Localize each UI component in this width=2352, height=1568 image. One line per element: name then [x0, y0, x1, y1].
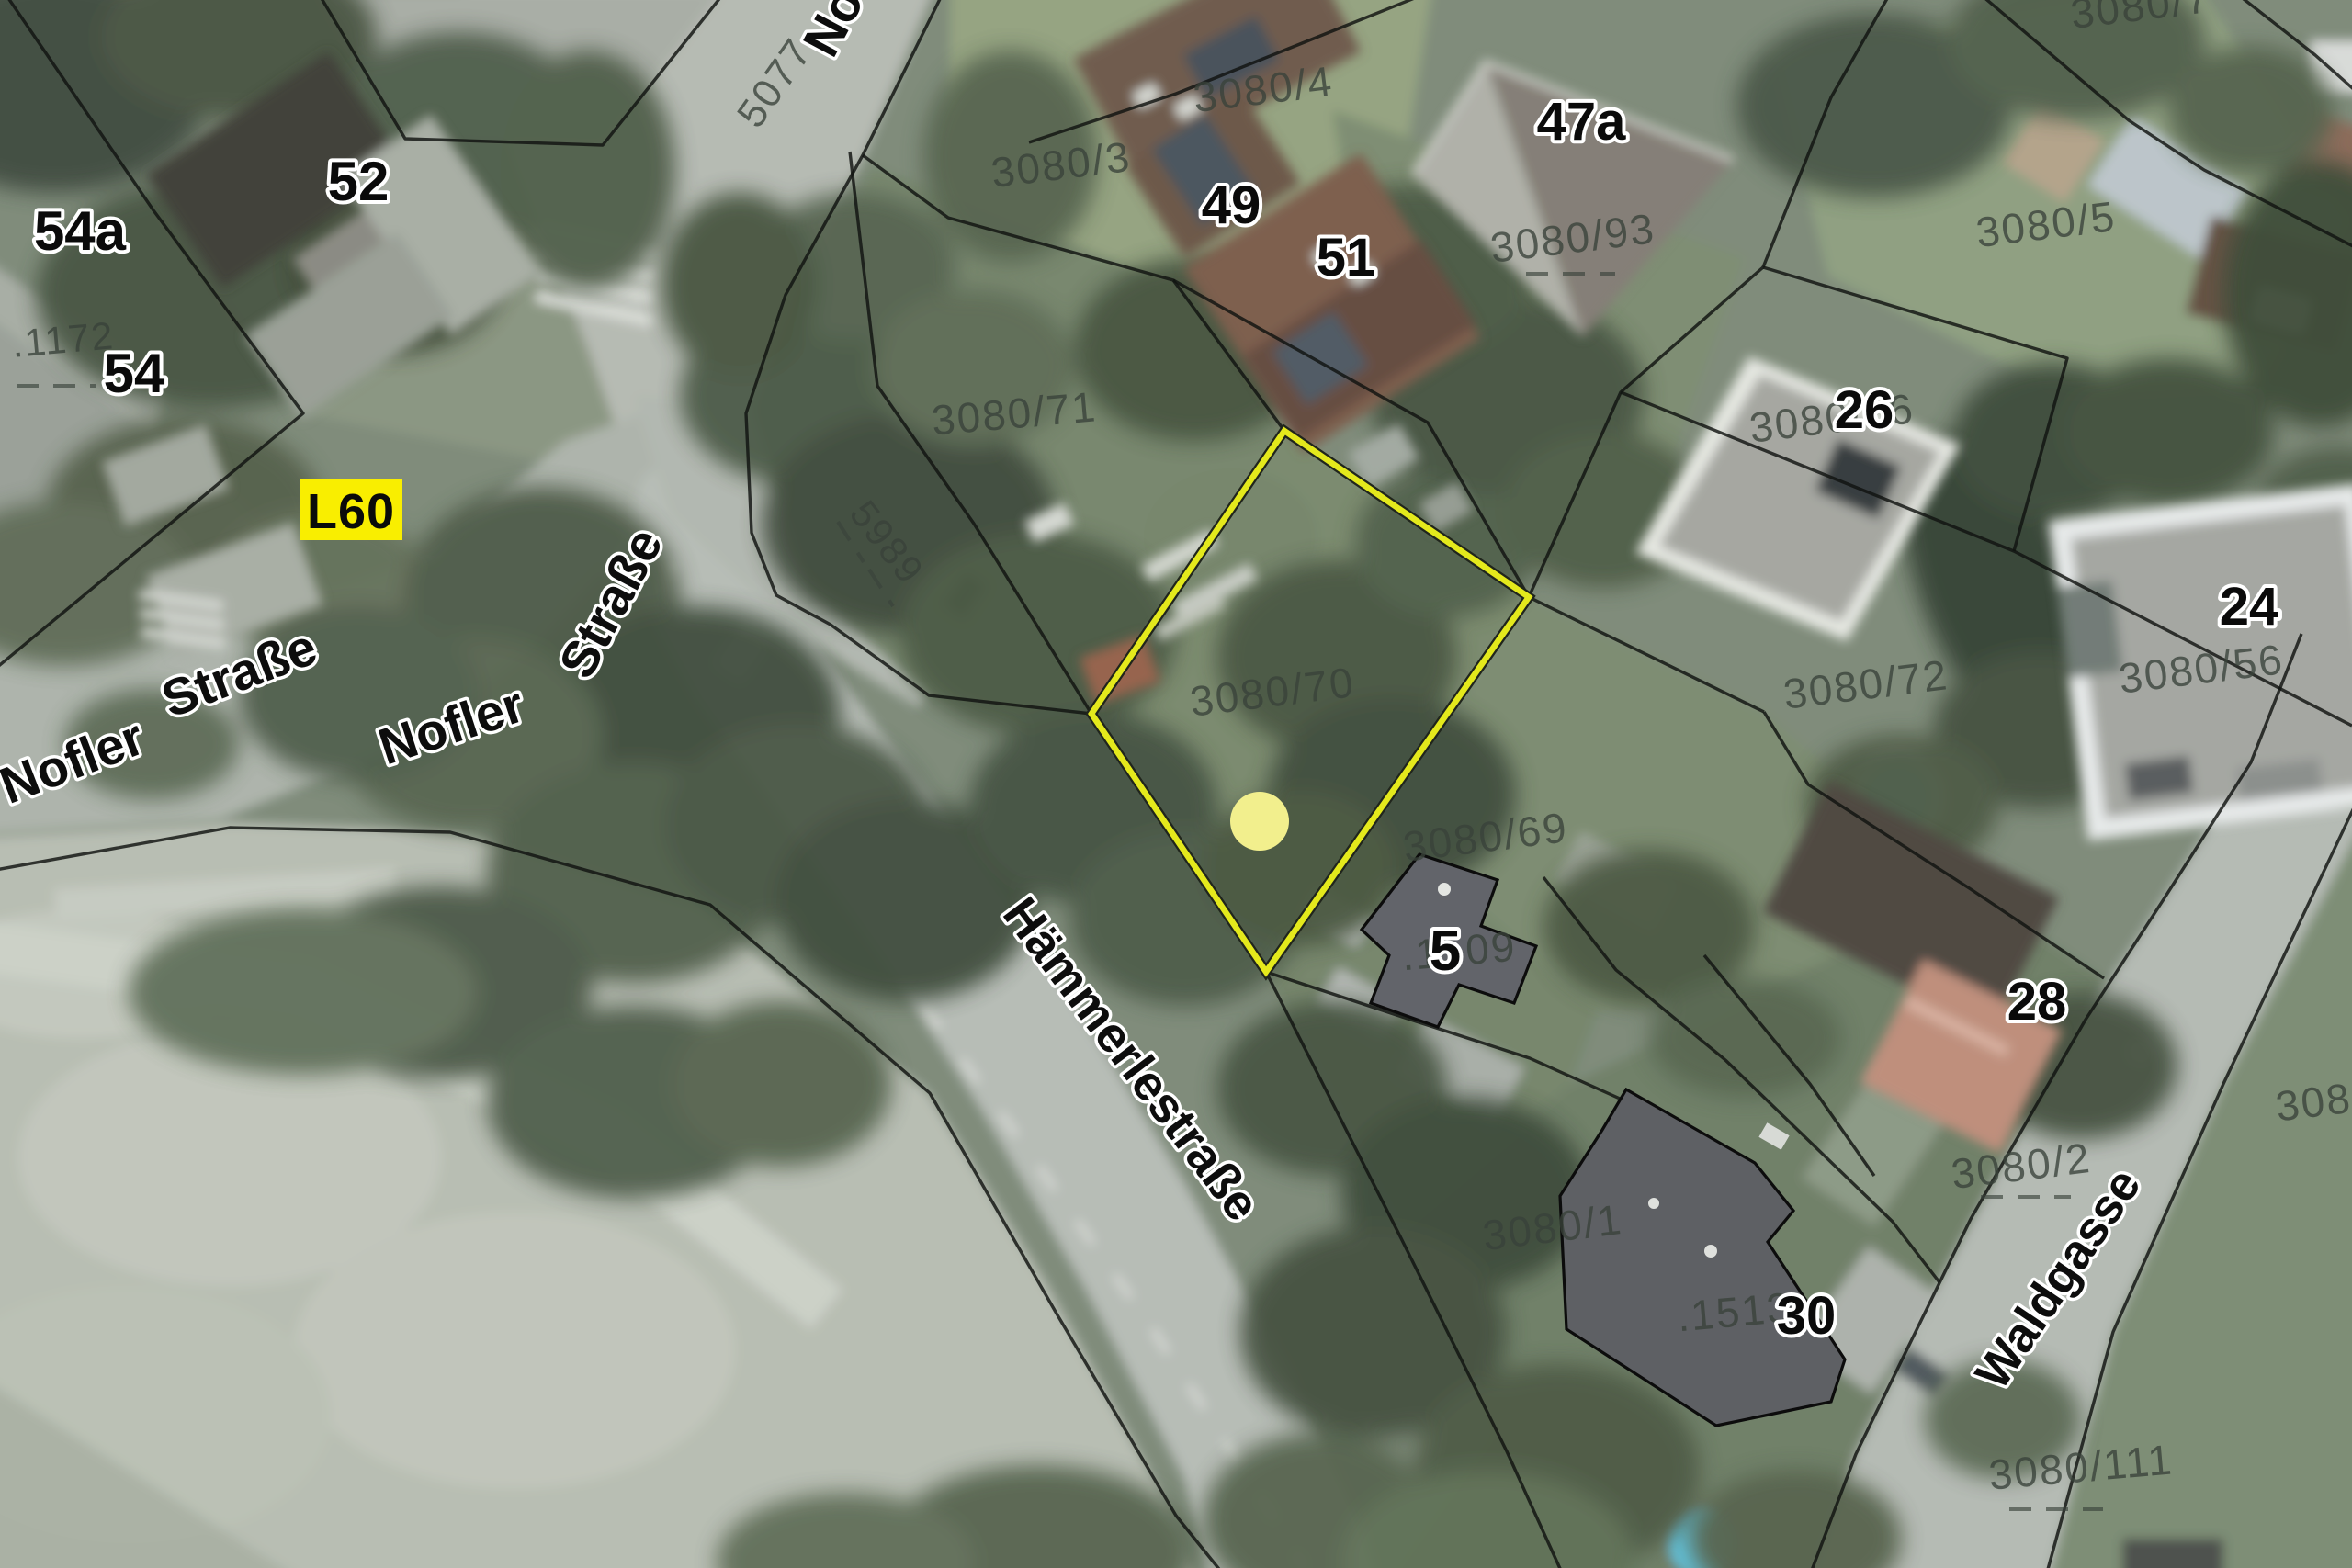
svg-text:.1172: .1172 — [10, 313, 117, 366]
svg-text:54: 54 — [104, 343, 165, 404]
svg-text:24: 24 — [2220, 577, 2279, 637]
svg-text:54a: 54a — [34, 200, 127, 262]
svg-text:49: 49 — [1202, 175, 1261, 235]
svg-text:L60: L60 — [307, 484, 395, 539]
svg-text:52: 52 — [328, 151, 390, 212]
svg-text:30: 30 — [1777, 1286, 1837, 1346]
svg-text:47a: 47a — [1537, 92, 1627, 152]
svg-text:51: 51 — [1317, 228, 1376, 288]
svg-text:28: 28 — [2007, 972, 2067, 1032]
svg-text:5: 5 — [1430, 919, 1461, 983]
svg-text:26: 26 — [1835, 380, 1894, 440]
